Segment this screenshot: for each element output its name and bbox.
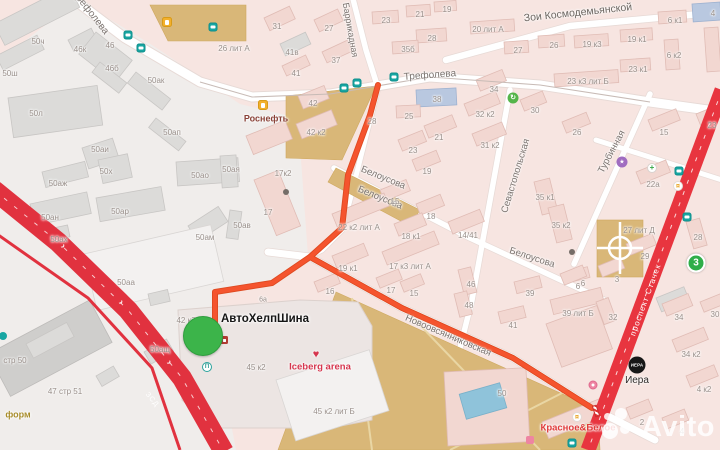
building: [406, 4, 431, 17]
building: [372, 10, 399, 24]
building: [692, 2, 720, 22]
transit-route-3-badge: 3: [687, 254, 706, 273]
building: [574, 34, 609, 48]
destination-marker[interactable]: [183, 316, 223, 356]
building: [538, 34, 565, 48]
building: [620, 28, 653, 42]
map-view[interactable]: › › › ТрефолеваТрефолеваБаррикаднаяЗои К…: [0, 0, 720, 450]
building: [434, 0, 457, 12]
building: [620, 58, 651, 72]
building: [396, 105, 421, 118]
map-canvas: › › ›: [0, 0, 720, 450]
building: [392, 40, 419, 54]
building: [504, 40, 529, 54]
avito-watermark-text: Avito: [641, 411, 715, 444]
avito-logo-icon: [602, 407, 638, 447]
building: [416, 28, 447, 43]
building: [664, 39, 680, 70]
building: [704, 27, 720, 72]
building: [416, 88, 457, 107]
building: [220, 155, 238, 188]
building: [470, 19, 515, 34]
iera-logo-badge[interactable]: ИЕРА: [629, 357, 646, 374]
avito-watermark: Avito: [602, 407, 715, 447]
building: [658, 10, 687, 24]
destination-label: АвтоХелпШина: [221, 313, 309, 325]
